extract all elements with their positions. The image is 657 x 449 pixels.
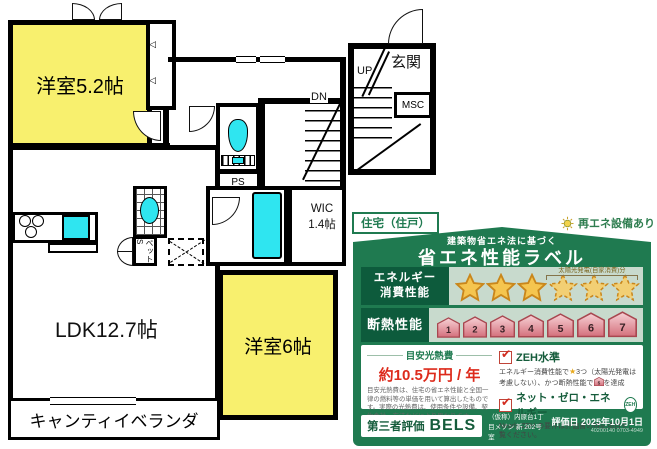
- zeh-desc-pre: エネルギー消費性能で: [499, 369, 569, 376]
- insulation-grade-badge: 5: [547, 313, 574, 338]
- grade-number: 7: [619, 323, 625, 335]
- insulation-grades: 1 2 3 4 5 6 7: [429, 308, 643, 342]
- walk-in-closet-label: WIC 1.4帖: [302, 202, 342, 233]
- sun-icon: [560, 216, 575, 231]
- window: [50, 397, 136, 405]
- insulation-grade-badge: 3: [490, 315, 515, 338]
- insulation-grade-badge: 7: [608, 311, 637, 338]
- evaluation-code: 40200140 0703-4949: [551, 428, 643, 435]
- renewable-note: 再エネ設備あり: [560, 215, 655, 231]
- door-mark-icon: ◁: [149, 76, 156, 85]
- energy-consumption-label: エネルギー 消費性能: [361, 267, 449, 305]
- evaluation-date-block: 評価日 2025年10月1日 40200140 0703-4949: [551, 417, 643, 436]
- check-icon: ✔: [501, 395, 511, 409]
- room-western-5-2: 洋室5.2帖: [8, 20, 152, 148]
- stove-burner-icon: [32, 215, 44, 227]
- bels-badge: 第三者評価 BELS: [361, 415, 482, 437]
- solar-note: 太陽光発電(自家消費)分: [546, 268, 638, 274]
- entrance-door-arc: [388, 9, 423, 44]
- third-party-label: 第三者評価: [367, 418, 425, 434]
- bathtub-icon: [252, 192, 282, 259]
- washbasin-bowl-icon: [140, 197, 159, 224]
- screenshot-root: 洋室5.2帖 ◁ ◁ PS DN: [0, 0, 657, 449]
- insulation-grade-badge: 2: [463, 316, 487, 338]
- evaluation-date: 評価日 2025年10月1日: [551, 417, 643, 429]
- entrance-label: 玄関: [391, 55, 421, 70]
- stairs-up: [354, 87, 392, 143]
- insulation-grade-badge: 6: [577, 312, 605, 338]
- zeh-badge-icon: ZEH: [624, 397, 638, 413]
- door-mark-icon: ◁: [149, 40, 156, 49]
- window: [236, 56, 256, 63]
- energy-label-line2: 消費性能: [380, 286, 430, 301]
- building-type-badge: 住宅（住戸）: [352, 212, 439, 234]
- star-icon: [486, 273, 516, 302]
- pet-storage-label: ペットS: [135, 239, 155, 263]
- divider: [456, 355, 492, 356]
- room-western-6: 洋室6帖: [218, 270, 338, 420]
- wic-label-line2: 1.4帖: [308, 219, 336, 231]
- grade-number: 1: [446, 325, 451, 335]
- pet-storage: ペットS: [133, 236, 157, 266]
- zeh-level-line: ✔ ZEH水準: [499, 349, 637, 365]
- zeh-block: ✔ ZEH水準 エネルギー消費性能で★3つ（太陽光発電は考慮しない）、かつ断熱性…: [497, 345, 643, 409]
- property-name: （仮称）内原台1丁目メゾン 新 202号室: [488, 411, 545, 441]
- bels-logo: BELS: [430, 417, 477, 435]
- toilet-counter-basin: [232, 157, 244, 164]
- stove-burner-icon: [25, 226, 37, 238]
- msc-box: MSC: [394, 92, 432, 118]
- estimated-cost-heading-text: 目安光熱費: [406, 348, 454, 362]
- info-panel: 目安光熱費 約10.5万円 / 年 目安光熱費は、住宅の省エネ性能と全国一律の燃…: [361, 345, 643, 409]
- estimated-cost-block: 目安光熱費 約10.5万円 / 年 目安光熱費は、住宅の省エネ性能と全国一律の燃…: [361, 345, 497, 409]
- energy-performance-label: 住宅（住戸） 再エネ設備あり 建築物省エネ法に基づく 省エネ性能ラベル: [350, 210, 657, 449]
- zeh-level-label: ZEH水準: [516, 349, 560, 365]
- estimated-cost-heading: 目安光熱費: [367, 348, 492, 362]
- room-ldk-label: LDK12.7帖: [55, 320, 158, 341]
- stairs-down-label: DN: [310, 92, 328, 103]
- solar-bracket-line: [546, 275, 638, 280]
- checkbox-icon: ✔: [499, 351, 512, 364]
- closet: [146, 20, 176, 110]
- divider: [367, 355, 403, 356]
- grade-number: 5: [558, 323, 564, 335]
- kitchen-sink-icon: [62, 215, 90, 240]
- energy-consumption-row: エネルギー 消費性能 太陽光発電(自家消費)分: [361, 267, 643, 305]
- stairs-down: [305, 100, 343, 188]
- check-icon: ✔: [501, 347, 511, 361]
- insulation-grade-badge: 1: [437, 317, 460, 338]
- mini-grade-number: 5: [597, 380, 600, 385]
- insulation-label: 断熱性能: [361, 308, 429, 342]
- wic-label-line1: WIC: [311, 203, 333, 215]
- solar-bracket: 太陽光発電(自家消費)分: [546, 268, 638, 280]
- door-arc: [189, 106, 215, 132]
- energy-stars: 太陽光発電(自家消費)分: [449, 267, 643, 305]
- estimated-cost-value: 約10.5万円 / 年: [367, 364, 492, 385]
- checkbox-icon: ✔: [499, 399, 512, 412]
- room-ldk: [8, 145, 220, 403]
- grade-number: 2: [472, 325, 477, 335]
- energy-label-line1: エネルギー: [374, 271, 437, 286]
- zeh-level-desc: エネルギー消費性能で★3つ（太陽光発電は考慮しない）、かつ断熱性能で5を達成: [499, 367, 637, 389]
- grade-number: 6: [588, 323, 594, 335]
- door-arc: [72, 3, 95, 20]
- kitchen-counter-ext: [48, 243, 98, 253]
- zeh-desc-post: を達成: [604, 380, 625, 387]
- insulation-grade-mini-icon: 5: [594, 377, 604, 386]
- star-icon: [455, 273, 485, 302]
- renewable-note-text: 再エネ設備あり: [578, 215, 655, 231]
- insulation-grade-badge: 4: [518, 314, 544, 338]
- stairs-up-label: UP: [357, 66, 372, 77]
- label-card: 建築物省エネ法に基づく 省エネ性能ラベル エネルギー 消費性能 太陽光発電(自家…: [353, 227, 651, 446]
- window: [260, 56, 285, 63]
- grade-number: 3: [500, 324, 506, 335]
- insulation-row: 断熱性能 1 2 3 4 5 6 7: [361, 308, 643, 342]
- wall: [168, 57, 344, 62]
- door-arc: [99, 3, 122, 20]
- grade-number: 4: [528, 324, 534, 335]
- star-icon: [517, 273, 547, 302]
- label-footer: 第三者評価 BELS （仮称）内原台1丁目メゾン 新 202号室 評価日 202…: [361, 413, 643, 439]
